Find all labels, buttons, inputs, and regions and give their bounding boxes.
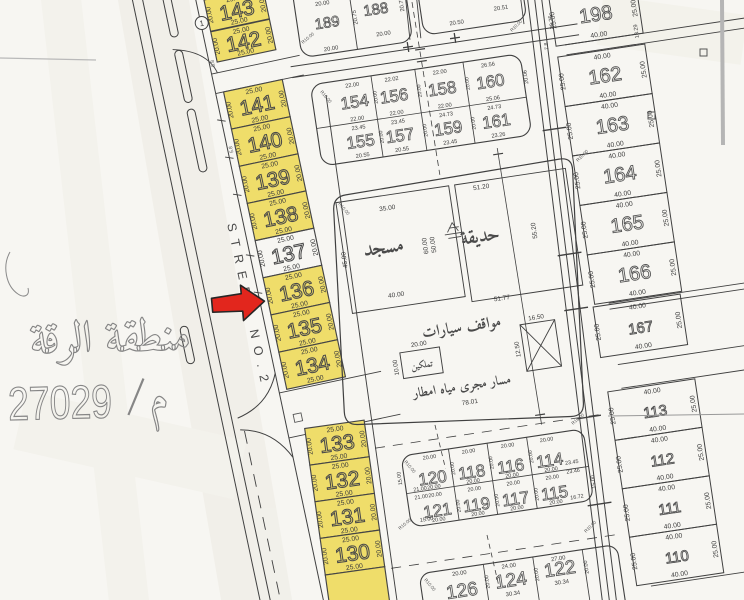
svg-text:113: 113 [642, 402, 668, 422]
svg-text:112: 112 [649, 450, 675, 470]
svg-text:7.8: 7.8 [543, 42, 550, 50]
svg-text:111: 111 [657, 499, 682, 519]
svg-text:126: 126 [445, 579, 479, 600]
svg-text:27029: 27029 [7, 374, 112, 430]
svg-text:110: 110 [664, 547, 690, 567]
